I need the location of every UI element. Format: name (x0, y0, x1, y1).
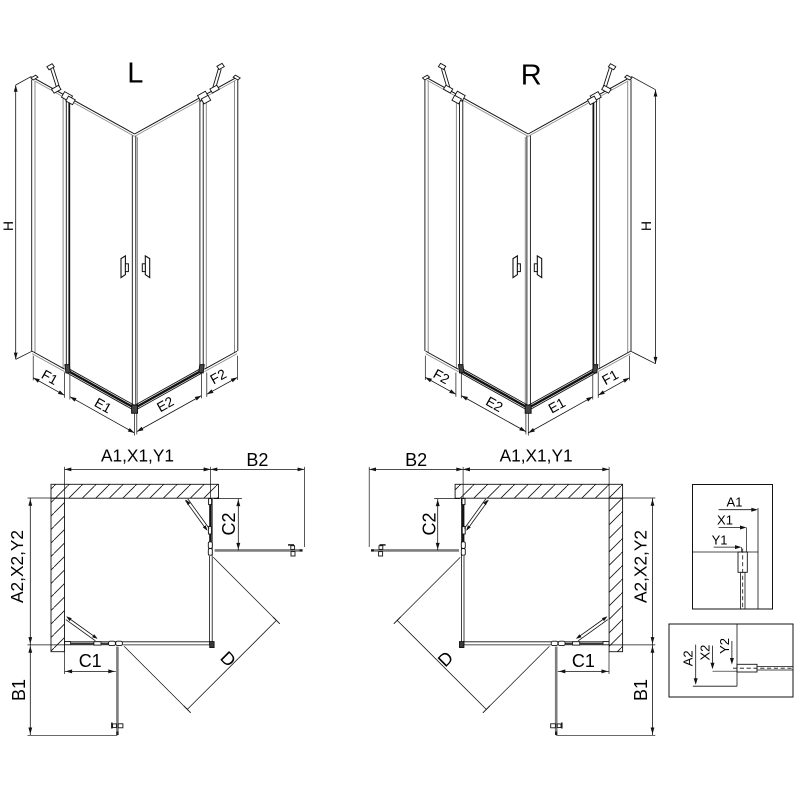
svg-text:C2: C2 (219, 512, 239, 535)
svg-text:B1: B1 (9, 679, 29, 701)
svg-text:B2: B2 (405, 450, 427, 470)
svg-text:A2: A2 (681, 650, 696, 666)
svg-text:A1,X1,Y1: A1,X1,Y1 (500, 446, 573, 466)
svg-text:B1: B1 (631, 679, 651, 701)
svg-text:A1: A1 (727, 495, 743, 510)
svg-text:H: H (1, 221, 16, 231)
svg-text:X2: X2 (698, 645, 713, 661)
svg-text:X1: X1 (717, 512, 733, 527)
svg-text:Y2: Y2 (717, 638, 732, 654)
svg-text:L: L (127, 58, 143, 90)
svg-text:H: H (639, 221, 654, 231)
svg-text:A2,X2,Y2: A2,X2,Y2 (630, 530, 650, 603)
svg-text:B2: B2 (246, 450, 268, 470)
svg-text:R: R (521, 60, 542, 92)
svg-text:C1: C1 (79, 651, 102, 671)
svg-text:Y1: Y1 (712, 532, 728, 547)
svg-text:A2,X2,Y2: A2,X2,Y2 (7, 530, 27, 603)
svg-text:C1: C1 (572, 651, 595, 671)
svg-text:A1,X1,Y1: A1,X1,Y1 (101, 446, 174, 466)
svg-text:C2: C2 (420, 512, 440, 535)
